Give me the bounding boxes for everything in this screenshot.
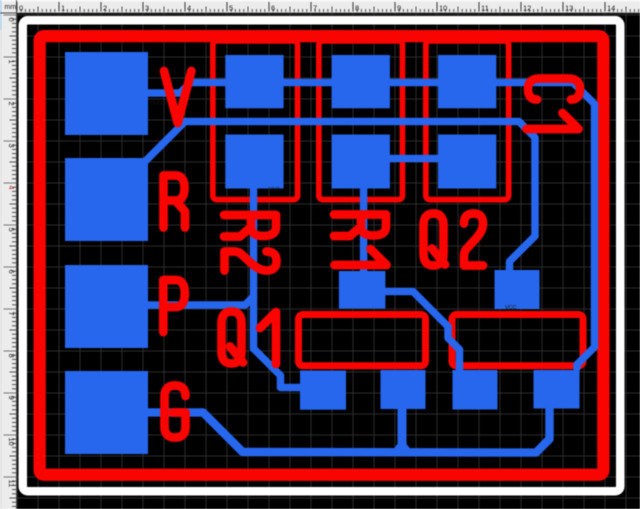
svg-text:11: 11 xyxy=(481,4,489,13)
svg-text:8: 8 xyxy=(355,4,359,13)
svg-text:3: 3 xyxy=(145,4,149,13)
svg-text:0: 0 xyxy=(7,18,16,22)
svg-text:7: 7 xyxy=(7,312,16,316)
svg-text:4: 4 xyxy=(7,186,16,190)
svg-text:13: 13 xyxy=(565,4,573,13)
svg-text:11: 11 xyxy=(7,480,16,488)
svg-text:6: 6 xyxy=(7,270,16,274)
svg-text:7: 7 xyxy=(313,4,317,13)
svg-text:1: 1 xyxy=(61,4,65,13)
svg-text:mm: mm xyxy=(5,4,17,11)
svg-text:VCC: VCC xyxy=(505,305,517,311)
svg-text:6: 6 xyxy=(271,4,275,13)
svg-text:1: 1 xyxy=(7,60,16,64)
svg-text:3: 3 xyxy=(7,144,16,148)
svg-text:12: 12 xyxy=(523,4,531,13)
svg-text:8: 8 xyxy=(7,354,16,358)
svg-text:4: 4 xyxy=(187,4,191,13)
svg-text:GND: GND xyxy=(268,187,280,193)
svg-text:9: 9 xyxy=(7,396,16,400)
svg-text:GND: GND xyxy=(168,315,180,321)
svg-text:10: 10 xyxy=(439,4,447,13)
svg-text:10: 10 xyxy=(7,438,16,446)
svg-text:2: 2 xyxy=(7,102,16,106)
svg-text:UVCC: UVCC xyxy=(150,101,166,107)
svg-text:5: 5 xyxy=(229,4,233,13)
svg-text:0: 0 xyxy=(19,4,23,13)
svg-text:9: 9 xyxy=(397,4,401,13)
svg-text:14: 14 xyxy=(607,4,615,13)
svg-text:2: 2 xyxy=(103,4,107,13)
svg-text:5: 5 xyxy=(7,228,16,232)
